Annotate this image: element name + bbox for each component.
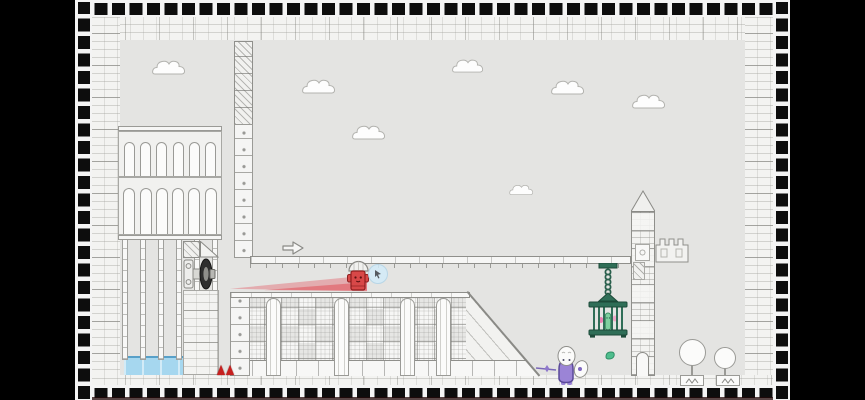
grass-zigzag-icon — [721, 378, 735, 384]
aqueduct-column — [122, 240, 128, 360]
arch-window — [189, 142, 200, 176]
hanging-cage — [586, 263, 630, 338]
tower-ornament-block — [635, 244, 650, 261]
letterbox-right — [790, 0, 865, 400]
arch-window — [156, 188, 168, 234]
arch-window — [188, 188, 200, 234]
aqueduct-column — [140, 240, 146, 360]
tower-spire — [631, 190, 655, 212]
arch-window — [124, 142, 135, 176]
border-checker-left — [75, 0, 92, 400]
building-pillar — [266, 298, 281, 376]
ornament-column — [234, 124, 253, 258]
arch-window — [140, 142, 151, 176]
spike-hazard — [217, 365, 225, 375]
tree-base-block — [716, 375, 740, 386]
frame-wall-right — [745, 17, 773, 385]
tree-base-block — [680, 375, 704, 386]
frame-wall-left — [92, 17, 120, 385]
walkway-supports — [250, 264, 631, 268]
npc-head — [558, 347, 575, 366]
building-pillar — [436, 298, 451, 376]
arch-window — [173, 142, 184, 176]
aqueduct-arch-band-lower — [118, 177, 222, 235]
arch-window — [123, 188, 135, 234]
arch-window — [172, 188, 184, 234]
arch-window — [205, 188, 217, 234]
arch-window — [205, 142, 216, 176]
spike-hazard — [226, 365, 234, 375]
cloud — [509, 183, 534, 196]
cursor-icon — [373, 269, 383, 279]
tower-hatch-block — [633, 262, 645, 280]
cannon — [180, 256, 218, 294]
collectible-gem — [604, 350, 616, 360]
hint-bubble — [368, 264, 388, 284]
cloud — [302, 77, 336, 95]
walkway — [250, 256, 631, 264]
tree-ball — [679, 339, 706, 366]
npc-purple — [534, 345, 594, 387]
arch-window — [156, 142, 167, 176]
arch-window — [140, 188, 152, 234]
cloud — [632, 92, 666, 110]
building-left-column — [230, 292, 250, 376]
game-viewport[interactable] — [75, 0, 790, 400]
cloud — [352, 123, 386, 141]
grass-zigzag-icon — [685, 378, 699, 384]
frame-wall-top — [92, 17, 773, 40]
cloud — [551, 78, 585, 96]
aqueduct-lintel-mid — [118, 235, 222, 240]
game-window — [0, 0, 865, 400]
tower-door — [636, 352, 649, 376]
arrow-sign — [280, 239, 306, 257]
cloud — [452, 57, 484, 74]
cannon-brick-column — [183, 290, 219, 375]
tower — [631, 190, 655, 376]
hatch-column — [234, 41, 253, 125]
aqueduct-arch-band-upper — [118, 131, 222, 177]
npc-sword-star — [545, 365, 550, 372]
aqueduct-column — [158, 240, 164, 360]
building-pillar — [334, 298, 349, 376]
cloud — [152, 58, 186, 76]
border-checker-top — [75, 0, 790, 17]
tree-ball — [714, 347, 736, 369]
building-pillar — [400, 298, 415, 376]
border-checker-right — [773, 0, 790, 400]
tower-battlement — [655, 236, 689, 263]
letterbox-left — [0, 0, 75, 400]
